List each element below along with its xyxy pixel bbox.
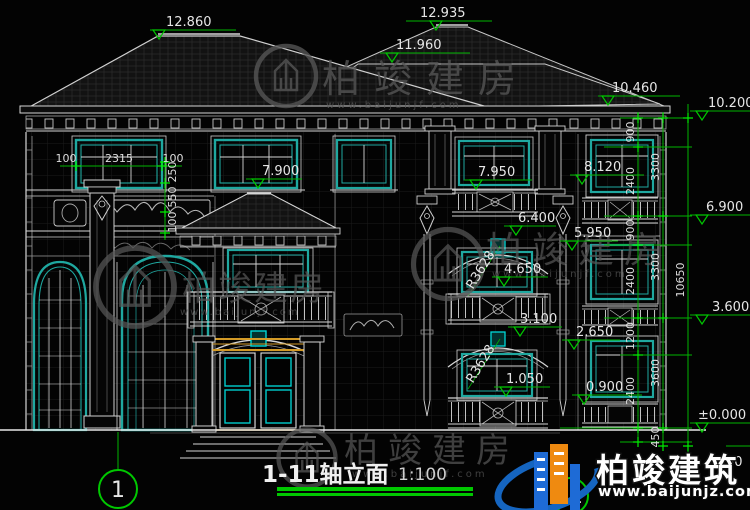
brand-logo: 柏竣建筑 www.baijunjz.com (491, 444, 750, 510)
dim-2400-a: 2400 (624, 167, 637, 195)
dim-3300-b: 3300 (649, 253, 662, 281)
dim-550: 550 (166, 187, 179, 208)
dim-2400-c: 2400 (624, 377, 637, 405)
title-underline-1 (277, 487, 473, 491)
door-leaf-right (261, 353, 296, 428)
level-text: 7.900 (262, 164, 299, 179)
door-leaf-left (220, 353, 255, 428)
level-text: 3.100 (520, 312, 557, 327)
level-text: 8.120 (584, 160, 621, 175)
axis-bubble-1: 1 (99, 432, 137, 508)
watermark-url: www.baijunjf.com (180, 307, 300, 318)
title-underline-2 (277, 493, 473, 496)
dim-margin-left: 100 (56, 152, 77, 165)
dim-100-v: 100 (166, 212, 179, 233)
dim-margin-right: 100 (163, 152, 184, 165)
level-parapet: 10.200 (696, 96, 750, 120)
drawing-title-block: 1-11轴立面 1:100 (262, 461, 473, 496)
level-ground: ±0.000 (696, 408, 746, 432)
porch-column-left (192, 336, 216, 432)
drawing-scale: 1:100 (398, 465, 447, 485)
dim-3600: 3600 (649, 359, 662, 387)
drawing-title: 1-11轴立面 (262, 461, 389, 488)
level-text: ±0.000 (698, 408, 746, 423)
level-text: 2.650 (576, 325, 613, 340)
watermark-brand: 柏竣建房 (182, 269, 326, 309)
dim-900-a: 900 (624, 122, 637, 143)
level-text: 10.460 (612, 81, 658, 96)
level-text: 5.950 (574, 226, 611, 241)
axis-label-1: 1 (111, 478, 125, 503)
dim-1200: 1200 (624, 322, 637, 350)
dim-2400-b: 2400 (624, 267, 637, 295)
balcony-railing-rw-f2 (582, 306, 658, 326)
level-text: 7.950 (478, 165, 515, 180)
level-text: 3.600 (712, 300, 749, 315)
watermark-url: www.baijunjf.com (326, 100, 462, 111)
level-text: 1.050 (506, 372, 543, 387)
ornament-panel-mid (344, 314, 402, 336)
logo-url: www.baijunjz.com (598, 484, 750, 500)
logo-buildings-icon (534, 444, 580, 510)
level-roof-ridge-back: 12.935 (406, 6, 492, 30)
balcony-railing-f1-right (448, 398, 548, 428)
pilaster-f3-left (425, 126, 455, 194)
level-text: 4.650 (504, 262, 541, 277)
level-text: 6.400 (518, 211, 555, 226)
dim-900-b: 900 (624, 220, 637, 241)
level-text: 0.900 (586, 380, 623, 395)
porch-column-right (300, 336, 324, 432)
level-floor3: 6.900 (696, 200, 743, 224)
level-text: 6.900 (706, 200, 743, 215)
dim-3300-a: 3300 (649, 153, 662, 181)
level-text: 11.960 (396, 38, 442, 53)
watermark-brand: 柏竣建房 (322, 57, 530, 101)
dim-450: 450 (649, 427, 662, 448)
cad-elevation-screenshot: 柏竣建房 www.baijunjf.com 柏竣建房 www.baijunjf.… (0, 0, 750, 510)
pilaster-f3-right (535, 126, 565, 194)
keystone (491, 332, 505, 346)
elevation-canvas: 柏竣建房 www.baijunjf.com 柏竣建房 www.baijunjf.… (0, 0, 750, 510)
level-text: 12.860 (166, 15, 212, 30)
level-floor2: 3.600 (696, 300, 749, 324)
level-text: 12.935 (420, 6, 466, 21)
dim-window-width: 2315 (105, 152, 133, 165)
level-text: 10.200 (708, 96, 750, 111)
dim-total-height: 10650 (674, 263, 687, 298)
